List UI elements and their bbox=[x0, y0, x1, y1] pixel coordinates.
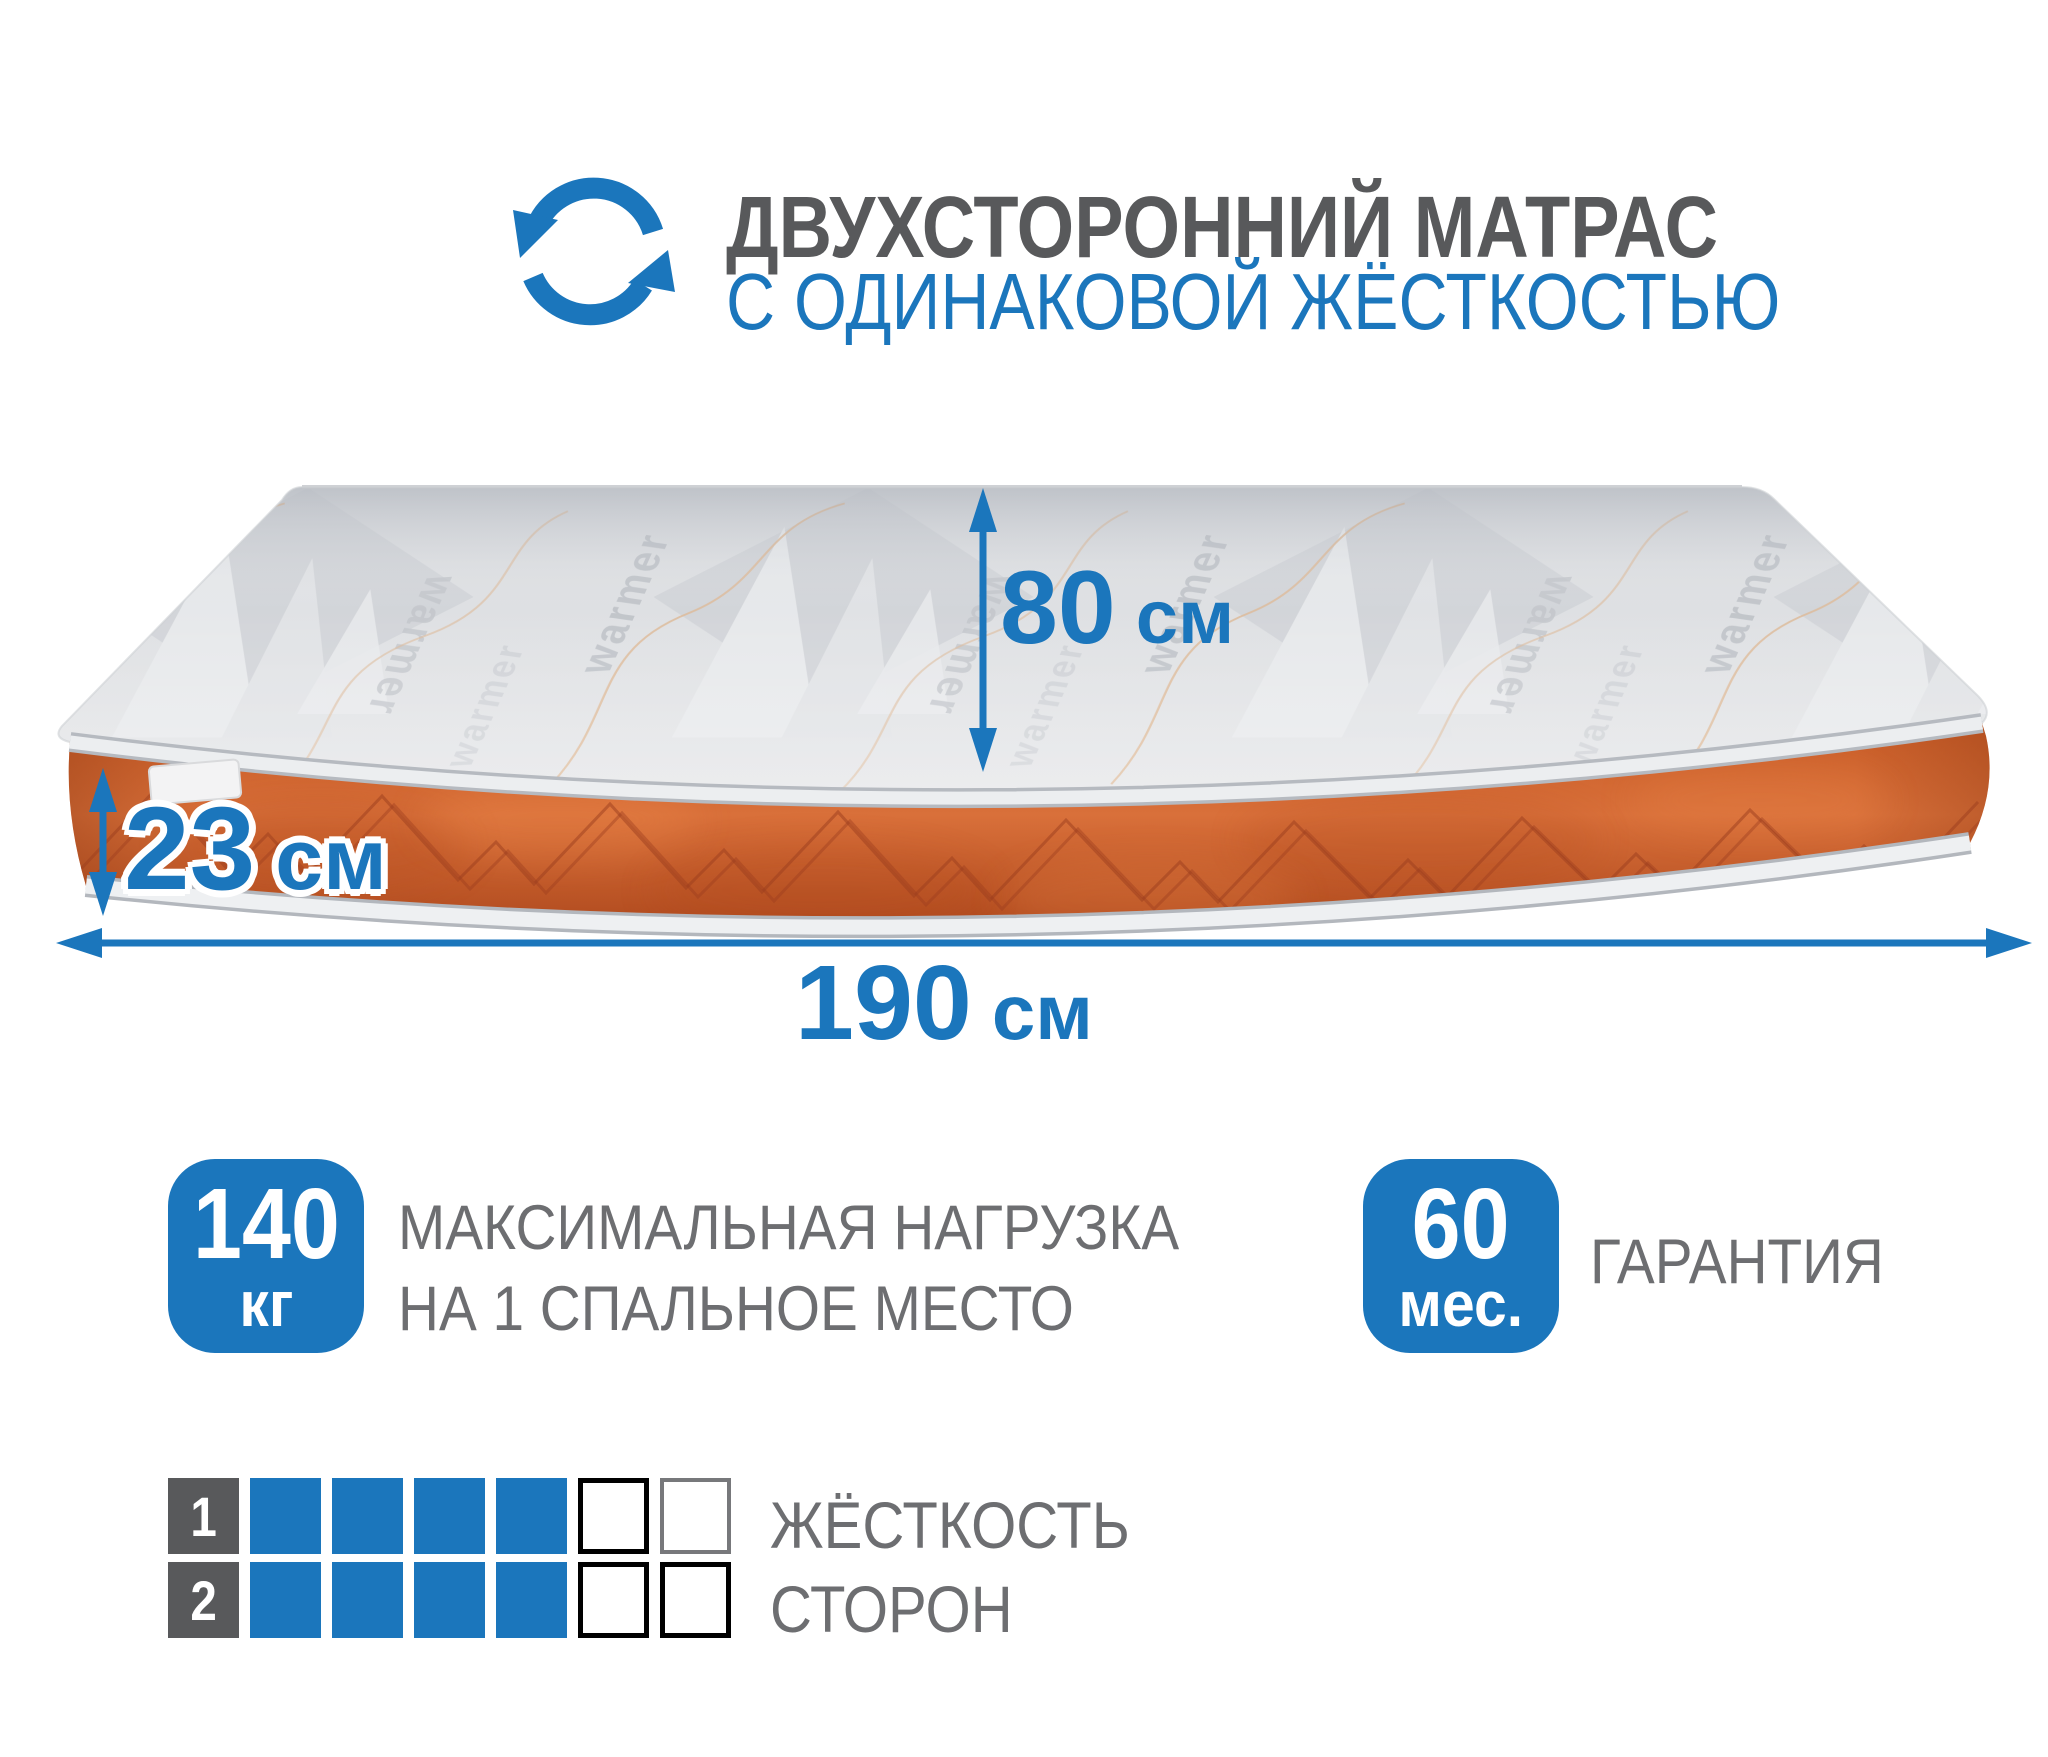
firmness-cell-empty bbox=[578, 1478, 649, 1554]
warranty-badge: 60 мес. bbox=[1363, 1159, 1559, 1353]
length-dimension-label: 190 см bbox=[795, 950, 1093, 1056]
firmness-row-1: 1 bbox=[168, 1478, 731, 1554]
firmness-cell-filled bbox=[496, 1478, 567, 1554]
firmness-cell-empty bbox=[578, 1562, 649, 1638]
firmness-cell-filled bbox=[332, 1478, 403, 1554]
height-unit: см bbox=[275, 817, 386, 903]
firmness-row-2: 2 bbox=[168, 1562, 731, 1638]
depth-value: 80 bbox=[1000, 556, 1116, 660]
firmness-cell-empty bbox=[660, 1562, 731, 1638]
firmness-cell-filled bbox=[496, 1562, 567, 1638]
max-load-label-line2: НА 1 СПАЛЬНОЕ МЕСТО bbox=[398, 1269, 1179, 1350]
depth-dimension-label: 80 см bbox=[1000, 556, 1234, 660]
firmness-scale: 1 2 bbox=[168, 1478, 731, 1646]
firmness-label-line2: СТОРОН bbox=[770, 1576, 1013, 1642]
max-load-value: 140 bbox=[193, 1177, 340, 1272]
max-load-label: МАКСИМАЛЬНАЯ НАГРУЗКА НА 1 СПАЛЬНОЕ МЕСТ… bbox=[398, 1188, 1179, 1349]
depth-unit: см bbox=[1136, 580, 1235, 656]
firmness-row-1-number: 1 bbox=[168, 1478, 239, 1554]
warranty-label-line1: ГАРАНТИЯ bbox=[1590, 1222, 1884, 1303]
firmness-row-2-number: 2 bbox=[168, 1562, 239, 1638]
height-dimension-label: 23 см bbox=[124, 790, 387, 908]
max-load-unit: кг bbox=[239, 1274, 293, 1335]
length-unit: см bbox=[992, 973, 1093, 1051]
length-value: 190 bbox=[795, 950, 972, 1056]
firmness-cell-filled bbox=[414, 1478, 485, 1554]
max-load-label-line1: МАКСИМАЛЬНАЯ НАГРУЗКА bbox=[398, 1188, 1179, 1269]
firmness-label-line1: ЖЁСТКОСТЬ bbox=[770, 1492, 1130, 1558]
infographic-canvas: ДВУХСТОРОННИЙ МАТРАС С ОДИНАКОВОЙ ЖЁСТКО… bbox=[0, 0, 2048, 1757]
warranty-unit: мес. bbox=[1399, 1274, 1524, 1335]
warranty-value: 60 bbox=[1412, 1177, 1510, 1272]
max-load-badge: 140 кг bbox=[168, 1159, 364, 1353]
warranty-label: ГАРАНТИЯ bbox=[1590, 1222, 1884, 1303]
firmness-cell-filled bbox=[250, 1478, 321, 1554]
firmness-cell-filled bbox=[250, 1562, 321, 1638]
firmness-cell-filled bbox=[414, 1562, 485, 1638]
firmness-cell-filled bbox=[332, 1562, 403, 1638]
firmness-cell-empty bbox=[660, 1478, 731, 1554]
height-value: 23 bbox=[124, 790, 255, 908]
